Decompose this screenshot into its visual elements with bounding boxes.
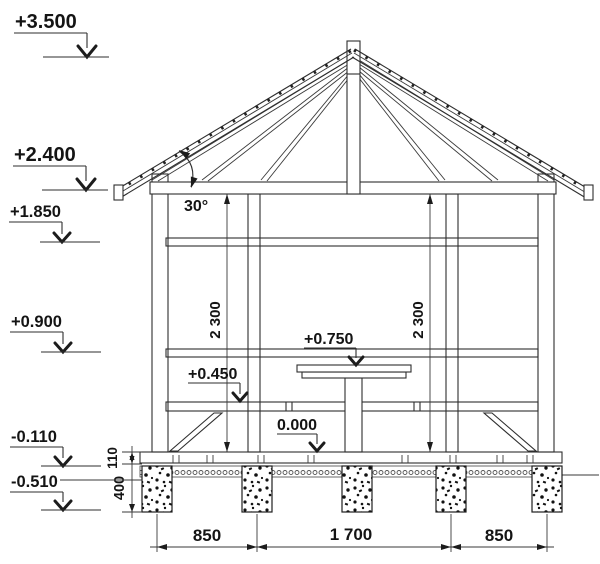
dim-label-bottom-right: 850 [485, 526, 513, 545]
level-label: +0.750 [304, 331, 353, 348]
elevation-label: +2.400 [14, 144, 76, 166]
table-top [297, 365, 411, 372]
level-label: 0.000 [277, 417, 317, 434]
foundation-pier-4 [436, 466, 466, 512]
king-post [347, 41, 360, 194]
dim-label-pier: 400 [112, 476, 128, 500]
dim-label-wall-right: 2 300 [410, 301, 427, 339]
elevation-label: +3.500 [15, 11, 77, 33]
eave-cap-right [584, 185, 593, 200]
table-pedestal [345, 378, 362, 452]
foundation-pier-5 [532, 466, 562, 512]
elevation-label: -0.110 [11, 428, 57, 446]
dim-label-bottom-left: 850 [193, 526, 221, 545]
angle-label: 30° [184, 198, 208, 215]
foundation-pier-2 [242, 466, 272, 512]
eave-cap-left [114, 185, 123, 200]
dim-label-wall-left: 2 300 [207, 301, 224, 339]
drawing-canvas: 30° [0, 0, 600, 564]
level-label: +0.450 [188, 366, 237, 383]
foundation-pier-3 [342, 466, 372, 512]
elevation-label: -0.510 [11, 473, 58, 491]
elevation-label: +0.900 [11, 313, 62, 331]
foundation-pier-1 [142, 466, 172, 512]
gazebo-section-drawing: 30° [0, 0, 600, 564]
table-apron [302, 372, 406, 378]
dim-label-bottom-middle: 1 700 [330, 525, 373, 544]
elevation-label: +1.850 [10, 203, 61, 221]
dim-label-deck: 110 [105, 447, 120, 469]
